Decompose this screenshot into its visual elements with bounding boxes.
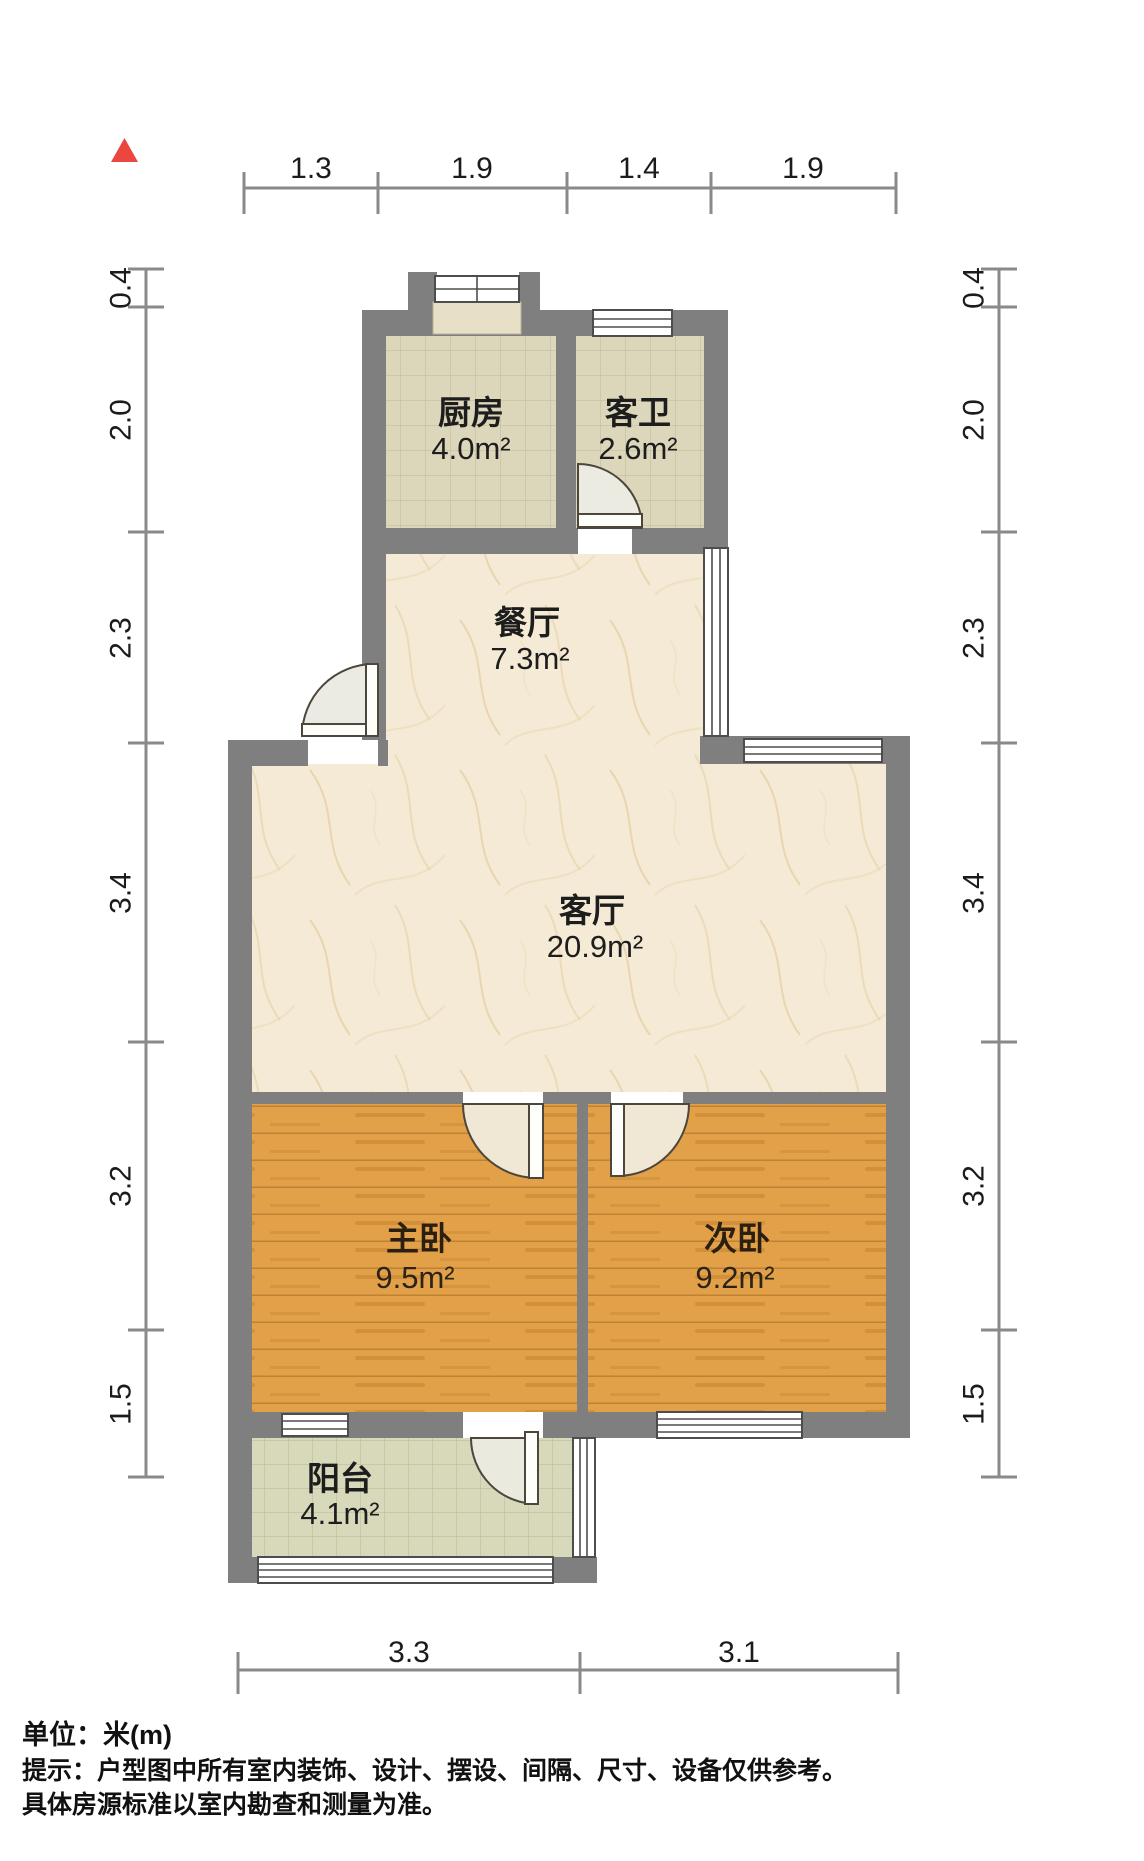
disclaimer-line-2: 具体房源标准以室内勘查和测量为准。	[22, 1790, 447, 1819]
kitchen-label-group: 厨房 4.0m²	[431, 394, 510, 466]
right-dimension-line: 0.4 2.0 2.3 3.4 3.2 1.5	[958, 267, 1018, 1477]
right-dim-5: 3.2	[958, 1165, 991, 1207]
living-label: 客厅	[559, 892, 625, 929]
kitchen-bay-window	[435, 276, 519, 302]
master-bedroom-label: 主卧	[386, 1220, 452, 1257]
guest-bath-area: 2.6m²	[598, 431, 677, 466]
guest-bath-label: 客卫	[605, 394, 671, 431]
balcony-label: 阳台	[307, 1460, 373, 1497]
guest-bath-label-group: 客卫 2.6m²	[598, 394, 677, 466]
left-dim-2: 2.0	[105, 399, 138, 441]
bottom-dimension-line: 3.3 3.1	[238, 1636, 898, 1694]
balcony-label-group: 阳台 4.1m²	[300, 1460, 379, 1531]
balcony-front-window	[258, 1557, 553, 1583]
second-bedroom-window	[657, 1412, 802, 1438]
balcony-area: 4.1m²	[300, 1496, 379, 1531]
left-dim-5: 3.2	[105, 1165, 138, 1207]
living-area: 20.9m²	[547, 929, 643, 964]
left-dimension-line: 0.4 2.0 2.3 3.4 3.2 1.5	[105, 267, 165, 1477]
bottom-dim-1: 3.3	[388, 1636, 430, 1669]
dining-label: 餐厅	[494, 604, 560, 641]
disclaimer-line-1: 提示：户型图中所有室内装饰、设计、摆设、间隔、尺寸、设备仅供参考。	[22, 1756, 847, 1785]
top-dimension-line: 1.3 1.9 1.4 1.9	[244, 152, 896, 214]
kitchen-bay-sill	[433, 302, 521, 334]
left-dim-3: 2.3	[105, 617, 138, 659]
right-dim-1: 0.4	[958, 267, 991, 309]
top-dim-4: 1.9	[782, 152, 824, 185]
left-dim-4: 3.4	[105, 872, 138, 914]
second-bedroom-area: 9.2m²	[695, 1260, 774, 1295]
dining-area: 7.3m²	[490, 641, 569, 676]
right-dim-2: 2.0	[958, 399, 991, 441]
living-window	[744, 739, 882, 762]
second-bedroom-label: 次卧	[704, 1220, 770, 1257]
right-dim-4: 3.4	[958, 872, 991, 914]
floorplan-page: 厨房 4.0m² 客卫 2.6m² 餐厅 7.3m² 客厅 20.9m² 主卧 …	[0, 0, 1144, 1861]
entrance-door	[302, 664, 378, 736]
master-bedroom-area: 9.5m²	[375, 1260, 454, 1295]
north-indicator-icon	[111, 138, 138, 162]
top-dim-1: 1.3	[290, 152, 332, 185]
kitchen-area: 4.0m²	[431, 431, 510, 466]
balcony-side-window	[573, 1438, 595, 1557]
master-balcony-window	[282, 1414, 348, 1436]
bottom-dim-2: 3.1	[718, 1636, 760, 1669]
dining-window	[704, 548, 728, 736]
guest-bath-window	[593, 310, 672, 336]
top-dim-2: 1.9	[451, 152, 493, 185]
top-dim-3: 1.4	[618, 152, 660, 185]
left-dim-1: 0.4	[105, 267, 138, 309]
right-dim-6: 1.5	[958, 1383, 991, 1425]
left-dim-6: 1.5	[105, 1383, 138, 1425]
footer-notes: 单位：米(m) 提示：户型图中所有室内装饰、设计、摆设、间隔、尺寸、设备仅供参考…	[22, 1719, 847, 1819]
unit-note: 单位：米(m)	[22, 1719, 172, 1750]
right-dim-3: 2.3	[958, 617, 991, 659]
floorplan-canvas: 厨房 4.0m² 客卫 2.6m² 餐厅 7.3m² 客厅 20.9m² 主卧 …	[0, 0, 1144, 1861]
kitchen-label: 厨房	[438, 394, 504, 431]
dining-label-group: 餐厅 7.3m²	[490, 604, 569, 676]
